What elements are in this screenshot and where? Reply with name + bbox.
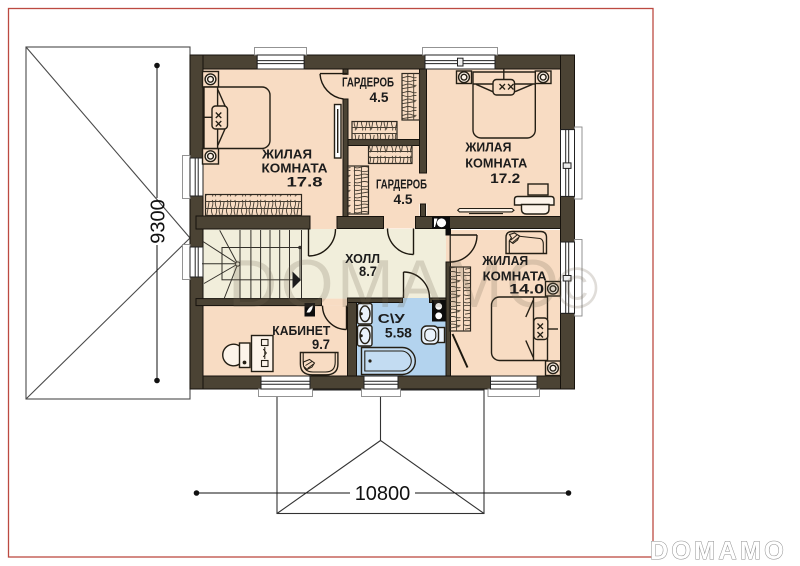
svg-text:9300: 9300	[148, 199, 170, 244]
svg-text:10800: 10800	[355, 483, 411, 505]
svg-text:КАБИНЕТ: КАБИНЕТ	[272, 323, 330, 338]
svg-text:17.8: 17.8	[287, 175, 324, 190]
svg-text:5.58: 5.58	[385, 325, 412, 340]
svg-text:DОМАМО©: DОМАМО©	[228, 246, 602, 322]
svg-text:ЖИЛАЯ: ЖИЛАЯ	[481, 253, 528, 268]
svg-text:ЖИЛАЯ: ЖИЛАЯ	[261, 147, 312, 162]
svg-text:ГАРДЕРОБ: ГАРДЕРОБ	[342, 74, 394, 89]
svg-text:4.5: 4.5	[394, 192, 413, 207]
svg-text:КОМНАТА: КОМНАТА	[465, 155, 528, 170]
svg-text:ЖИЛАЯ: ЖИЛАЯ	[464, 140, 511, 155]
svg-text:С\У: С\У	[378, 311, 406, 326]
svg-text:17.2: 17.2	[490, 171, 520, 186]
svg-text:DOMAMO: DOMAMO	[650, 537, 787, 565]
svg-text:ГАРДЕРОБ: ГАРДЕРОБ	[376, 176, 427, 191]
svg-text:14.0: 14.0	[509, 282, 544, 297]
svg-text:4.5: 4.5	[370, 90, 389, 105]
svg-text:8.7: 8.7	[359, 264, 377, 279]
svg-text:КОМНАТА: КОМНАТА	[262, 161, 329, 176]
svg-text:9.7: 9.7	[312, 337, 330, 352]
